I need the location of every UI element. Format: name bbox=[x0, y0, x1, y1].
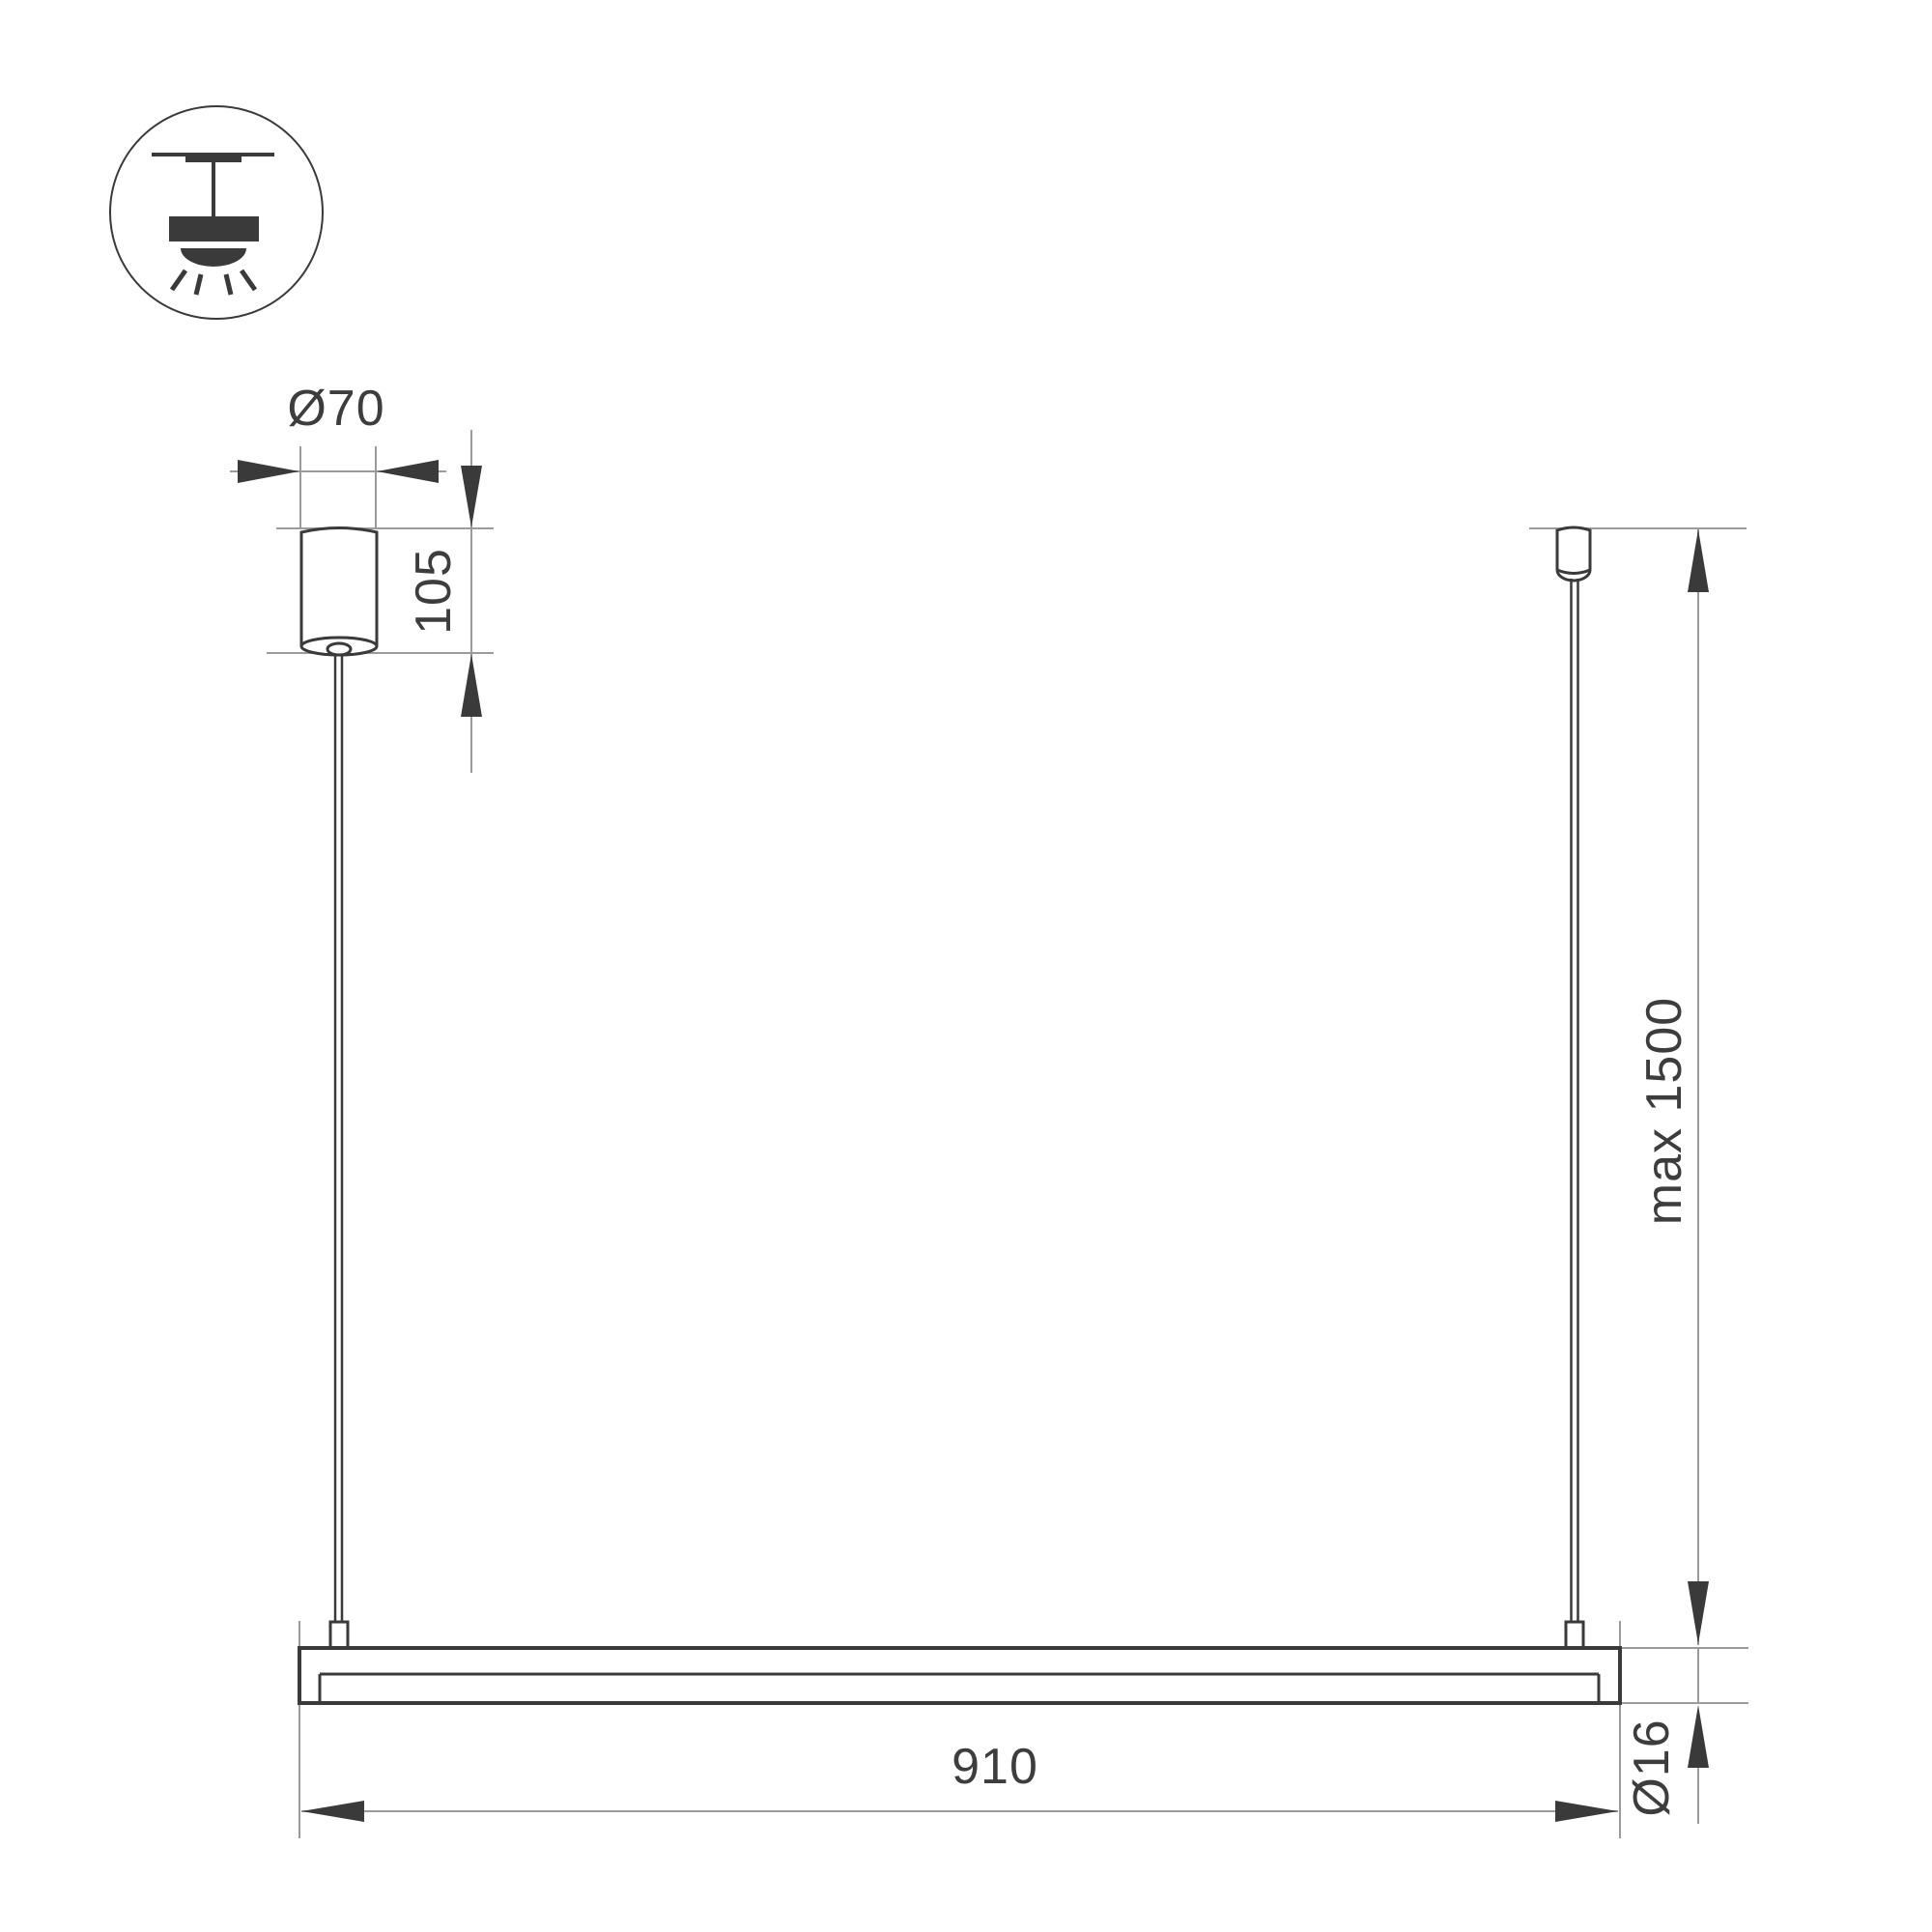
cable-gland bbox=[327, 643, 351, 655]
arrow-right-icon bbox=[238, 460, 299, 483]
dim-bar-diameter: Ø16 bbox=[1622, 1648, 1748, 1824]
arrow-left-icon bbox=[301, 1801, 364, 1822]
bar-diameter-label: Ø16 bbox=[1624, 1719, 1680, 1816]
drawing-canvas: Ø70 105 max 1500 bbox=[0, 0, 1932, 1932]
icon-circle bbox=[110, 106, 323, 319]
left-canopy bbox=[301, 528, 377, 656]
arrow-left-icon bbox=[377, 460, 439, 483]
icon-light-rays bbox=[172, 270, 255, 295]
left-suspension-cable bbox=[335, 655, 342, 1622]
suspension-length-label: max 1500 bbox=[1636, 997, 1692, 1225]
canopy-body bbox=[301, 528, 377, 646]
dimension-drawing: Ø70 105 max 1500 bbox=[0, 0, 1932, 1932]
dim-bar-length: 910 bbox=[301, 1739, 1618, 1822]
canopy-diameter-label: Ø70 bbox=[287, 381, 384, 437]
bar-length-label: 910 bbox=[952, 1739, 1038, 1795]
icon-lamp-dome bbox=[181, 248, 246, 267]
right-cable-fitting bbox=[1566, 1622, 1583, 1648]
ceiling-pendant-mount-icon bbox=[110, 106, 323, 319]
arrow-up-icon bbox=[1688, 529, 1709, 592]
light-bar bbox=[299, 1648, 1620, 1703]
arrow-down-icon bbox=[461, 466, 482, 527]
canopy-height-label: 105 bbox=[406, 548, 462, 635]
arrow-up-icon bbox=[1688, 1705, 1709, 1768]
arrow-right-icon bbox=[1555, 1801, 1618, 1822]
arrow-down-icon bbox=[1688, 1581, 1709, 1644]
dim-canopy-diameter: Ø70 bbox=[230, 381, 446, 528]
icon-mount-plate bbox=[185, 155, 241, 162]
left-cable-fitting bbox=[330, 1622, 348, 1648]
arrow-up-icon bbox=[461, 654, 482, 717]
dim-suspension-length: max 1500 bbox=[1636, 528, 1709, 1645]
icon-lamp-body bbox=[169, 216, 259, 241]
